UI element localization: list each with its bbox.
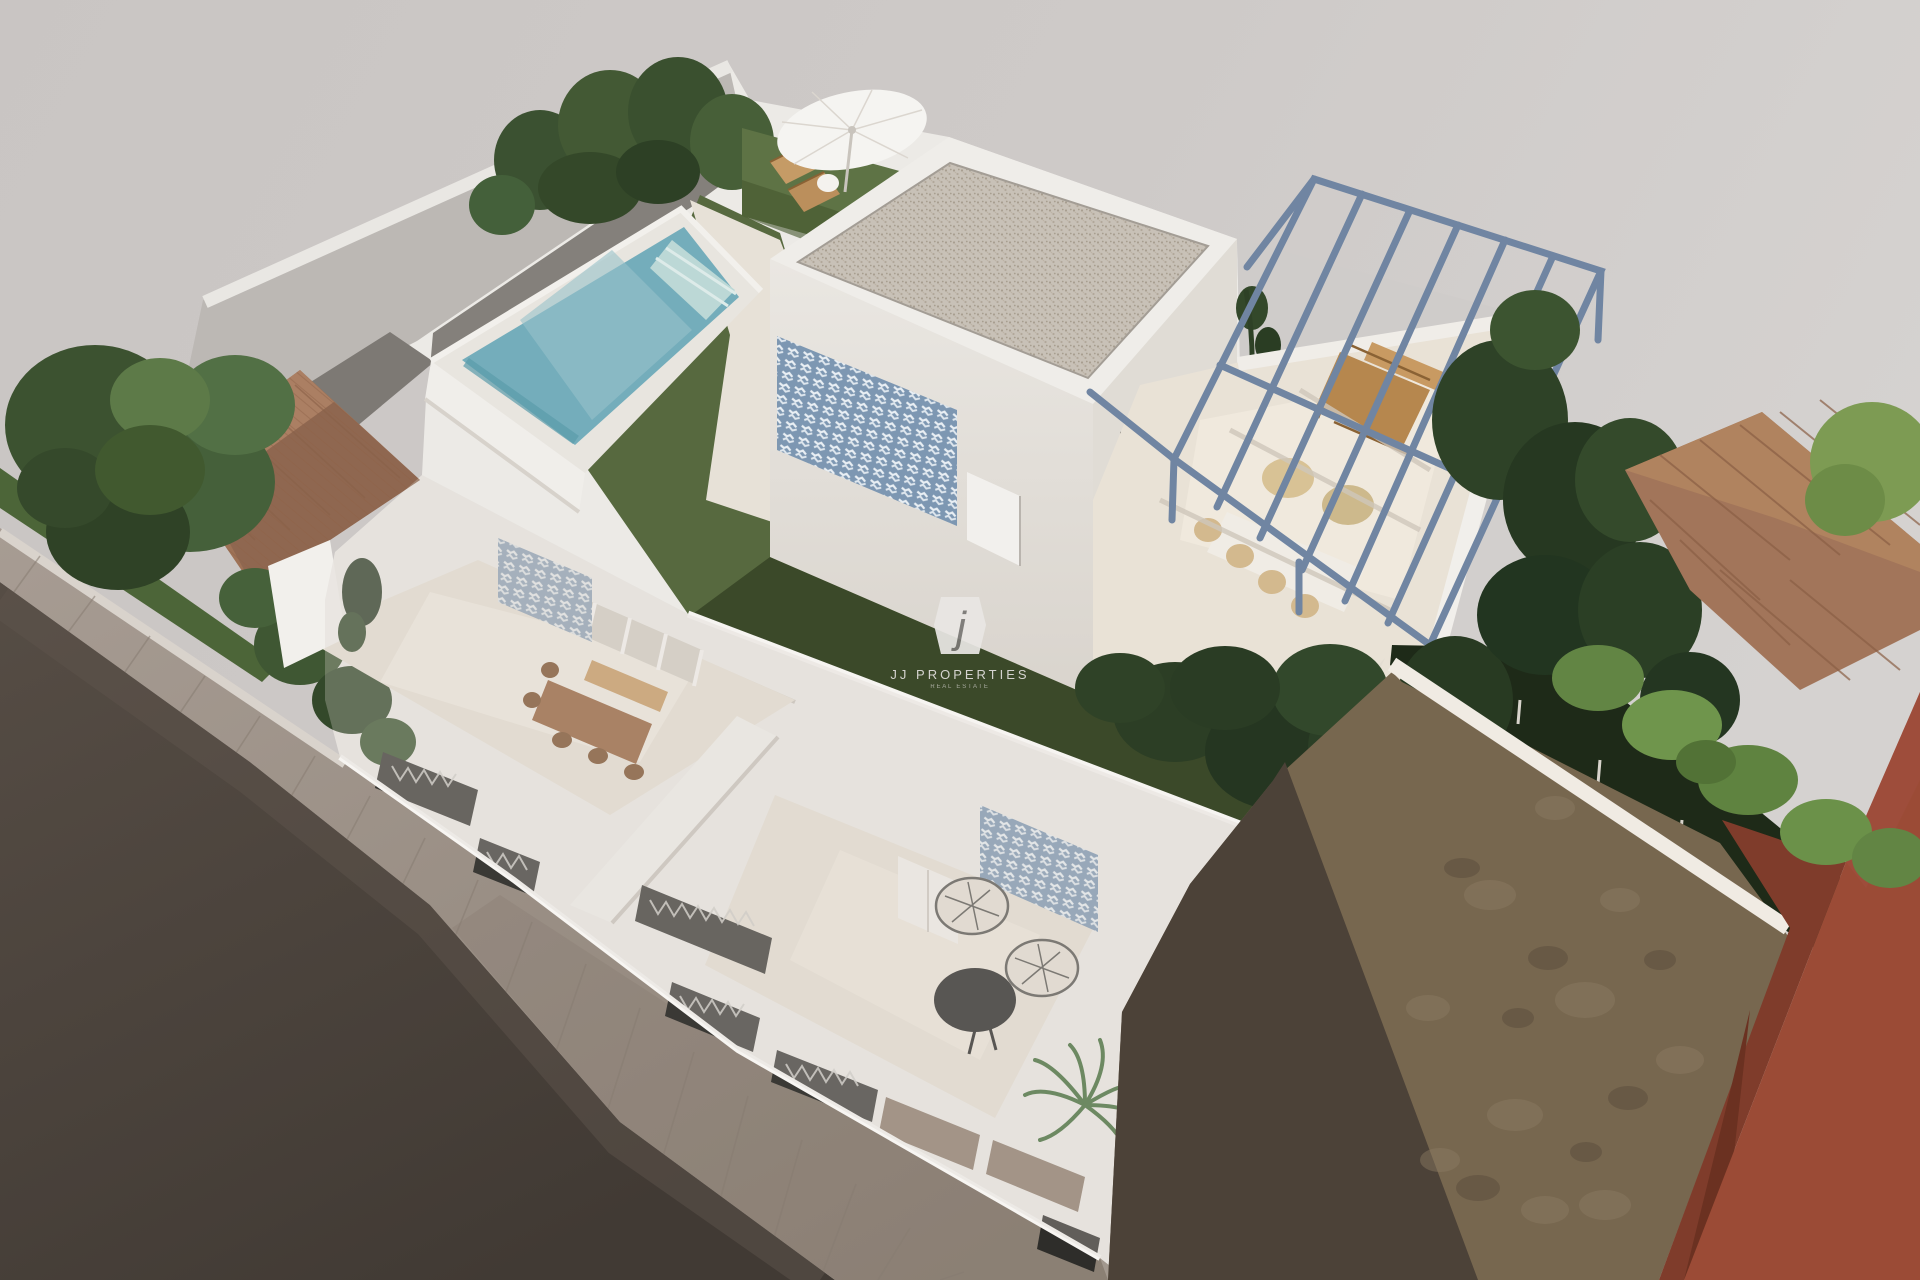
- svg-text:JJ PROPERTIES: JJ PROPERTIES: [890, 667, 1029, 682]
- svg-text:REAL ESTATE: REAL ESTATE: [930, 684, 989, 690]
